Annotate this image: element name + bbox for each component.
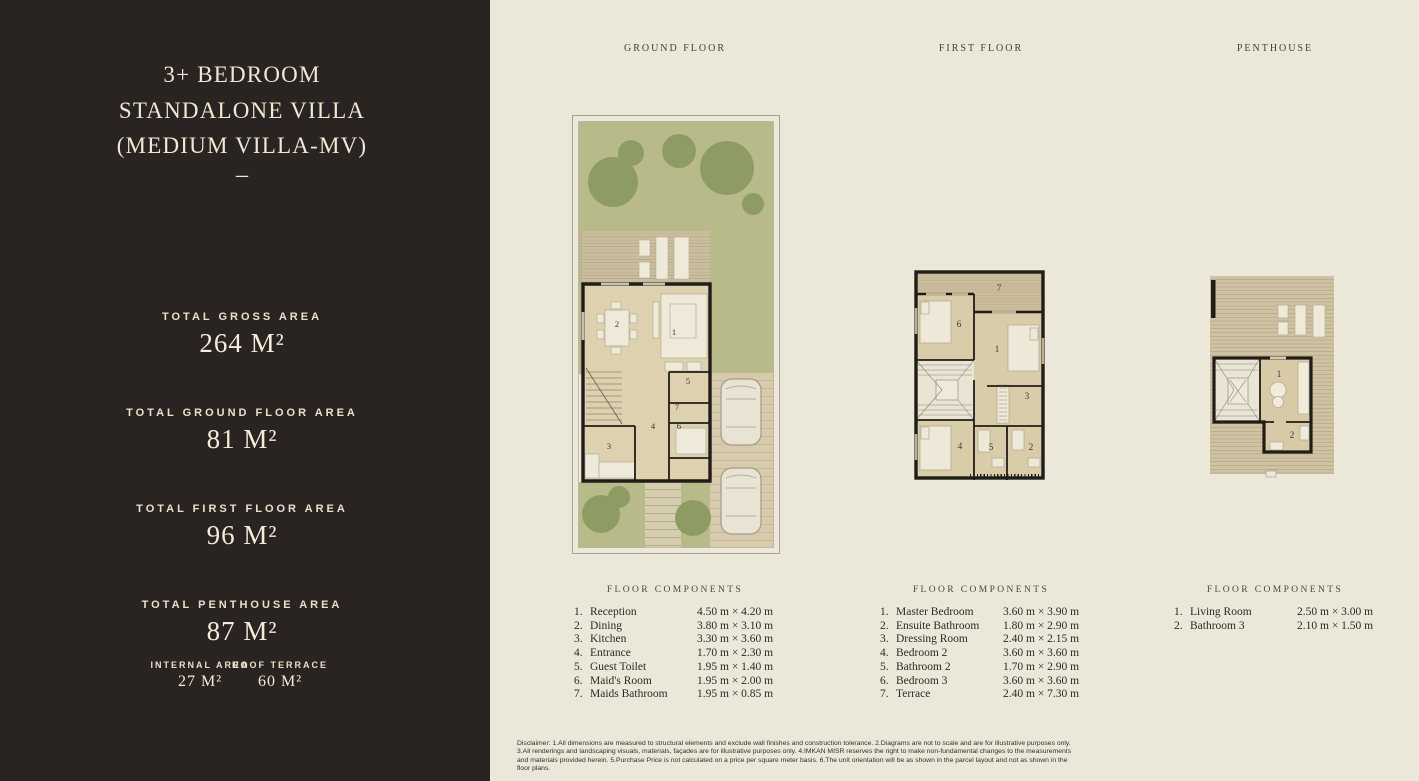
component-name: Living Room xyxy=(1190,606,1297,620)
ground-floor-components: FLOOR COMPONENTS 1.Reception4.50 m × 4.2… xyxy=(572,585,778,702)
stat-ground-floor-area-label: TOTAL GROUND FLOOR AREA xyxy=(0,407,484,419)
first-components-title: FLOOR COMPONENTS xyxy=(878,585,1084,595)
component-number: 3. xyxy=(878,633,896,647)
component-number: 1. xyxy=(572,606,590,620)
component-dims: 2.40 m × 7.30 m xyxy=(1003,688,1084,702)
component-name: Dressing Room xyxy=(896,633,1003,647)
component-dims: 2.50 m × 3.00 m xyxy=(1297,606,1378,620)
stat-ground-floor-area-value: 81 M² xyxy=(0,424,484,455)
ground-room-1-label: 1 xyxy=(672,327,676,337)
component-dims: 3.80 m × 3.10 m xyxy=(697,620,778,634)
stat-ground-floor-area: TOTAL GROUND FLOOR AREA 81 M² xyxy=(0,407,484,455)
stat-gross-area-value: 264 M² xyxy=(0,328,484,359)
stat-penthouse-area-label: TOTAL PENTHOUSE AREA xyxy=(0,599,484,611)
penthouse-plan-drawing: 1 2 xyxy=(1208,270,1336,478)
component-number: 7. xyxy=(878,688,896,702)
component-name: Maid's Room xyxy=(590,675,697,689)
page-title: 3+ BEDROOM STANDALONE VILLA (MEDIUM VILL… xyxy=(0,57,484,164)
ground-plan-deck-furniture xyxy=(639,237,689,279)
component-number: 4. xyxy=(572,647,590,661)
penthouse-components: FLOOR COMPONENTS 1.Living Room2.50 m × 3… xyxy=(1172,585,1378,633)
page-title-line1: 3+ BEDROOM xyxy=(0,57,484,93)
component-dims: 3.60 m × 3.60 m xyxy=(1003,647,1084,661)
component-name: Kitchen xyxy=(590,633,697,647)
component-name: Bathroom 3 xyxy=(1190,620,1297,634)
component-dims: 1.70 m × 2.90 m xyxy=(1003,661,1084,675)
component-name: Entrance xyxy=(590,647,697,661)
ground-room-7-label: 7 xyxy=(675,402,679,412)
penthouse-components-title: FLOOR COMPONENTS xyxy=(1172,585,1378,595)
component-name: Ensuite Bathroom xyxy=(896,620,1003,634)
component-number: 3. xyxy=(572,633,590,647)
first-room-2-label: 2 xyxy=(1029,442,1034,452)
ground-plan-stairs xyxy=(586,368,622,424)
ground-room-4-label: 4 xyxy=(651,421,656,431)
page-title-line2: STANDALONE VILLA xyxy=(0,93,484,129)
ground-room-5-label: 5 xyxy=(686,376,690,386)
component-number: 6. xyxy=(572,675,590,689)
component-number: 2. xyxy=(572,620,590,634)
stat-first-floor-area-value: 96 M² xyxy=(0,520,484,551)
component-row: 1.Master Bedroom3.60 m × 3.90 m xyxy=(878,606,1084,620)
stat-penthouse-area: TOTAL PENTHOUSE AREA 87 M² xyxy=(0,599,484,647)
penthouse-room-1-label: 1 xyxy=(1277,369,1282,379)
first-room-3-label: 3 xyxy=(1025,391,1030,401)
penthouse-plan-wall-stub xyxy=(1211,280,1216,318)
first-plan-drawing: 1 2 3 4 5 6 7 xyxy=(912,268,1047,483)
ground-room-3-label: 3 xyxy=(607,441,611,451)
ground-room-6-label: 6 xyxy=(677,421,681,431)
first-room-5-label: 5 xyxy=(989,442,994,452)
component-number: 7. xyxy=(572,688,590,702)
penthouse-heading: PENTHOUSE xyxy=(1175,43,1375,54)
ground-room-2-label: 2 xyxy=(615,319,619,329)
component-dims: 2.10 m × 1.50 m xyxy=(1297,620,1378,634)
first-room-7-label: 7 xyxy=(997,283,1002,293)
component-name: Dining xyxy=(590,620,697,634)
component-dims: 1.95 m × 1.40 m xyxy=(697,661,778,675)
component-dims: 1.80 m × 2.90 m xyxy=(1003,620,1084,634)
component-number: 2. xyxy=(878,620,896,634)
component-dims: 3.30 m × 3.60 m xyxy=(697,633,778,647)
component-row: 2.Ensuite Bathroom1.80 m × 2.90 m xyxy=(878,620,1084,634)
first-floor-plan: 1 2 3 4 5 6 7 xyxy=(912,268,1047,483)
first-room-6-label: 6 xyxy=(957,319,962,329)
component-row: 5.Bathroom 21.70 m × 2.90 m xyxy=(878,661,1084,675)
component-number: 5. xyxy=(572,661,590,675)
component-name: Bathroom 2 xyxy=(896,661,1003,675)
component-number: 5. xyxy=(878,661,896,675)
ground-plan-drawing: 1 2 3 4 5 6 7 xyxy=(573,116,779,553)
component-row: 3.Kitchen3.30 m × 3.60 m xyxy=(572,633,778,647)
title-dash: – xyxy=(0,162,484,189)
component-dims: 2.40 m × 2.15 m xyxy=(1003,633,1084,647)
component-number: 2. xyxy=(1172,620,1190,634)
first-floor-components: FLOOR COMPONENTS 1.Master Bedroom3.60 m … xyxy=(878,585,1084,702)
stat-roof-terrace-value: 60 M² xyxy=(215,673,345,691)
component-dims: 3.60 m × 3.60 m xyxy=(1003,675,1084,689)
penthouse-plan-gate-mark xyxy=(1266,471,1276,477)
component-name: Master Bedroom xyxy=(896,606,1003,620)
stat-first-floor-area: TOTAL FIRST FLOOR AREA 96 M² xyxy=(0,503,484,551)
component-row: 1.Reception4.50 m × 4.20 m xyxy=(572,606,778,620)
component-row: 6.Maid's Room1.95 m × 2.00 m xyxy=(572,675,778,689)
component-number: 1. xyxy=(878,606,896,620)
stat-first-floor-area-label: TOTAL FIRST FLOOR AREA xyxy=(0,503,484,515)
stat-roof-terrace: ROOF TERRACE 60 M² xyxy=(215,660,345,691)
component-dims: 1.95 m × 2.00 m xyxy=(697,675,778,689)
penthouse-plan: 1 2 xyxy=(1208,270,1336,478)
ground-components-title: FLOOR COMPONENTS xyxy=(572,585,778,595)
component-name: Terrace xyxy=(896,688,1003,702)
component-name: Bedroom 2 xyxy=(896,647,1003,661)
component-name: Guest Toilet xyxy=(590,661,697,675)
stat-gross-area: TOTAL GROSS AREA 264 M² xyxy=(0,311,484,359)
disclaimer-text: Disclaimer: 1.All dimensions are measure… xyxy=(517,740,1075,774)
first-room-4-label: 4 xyxy=(958,441,963,451)
component-name: Maids Bathroom xyxy=(590,688,697,702)
component-row: 2.Bathroom 32.10 m × 1.50 m xyxy=(1172,620,1378,634)
first-room-1-label: 1 xyxy=(995,344,1000,354)
component-row: 3.Dressing Room2.40 m × 2.15 m xyxy=(878,633,1084,647)
component-dims: 4.50 m × 4.20 m xyxy=(697,606,778,620)
stat-penthouse-area-value: 87 M² xyxy=(0,616,484,647)
component-row: 1.Living Room2.50 m × 3.00 m xyxy=(1172,606,1378,620)
ground-plan-room-furniture xyxy=(585,294,707,478)
penthouse-room-2-label: 2 xyxy=(1290,430,1295,440)
component-name: Bedroom 3 xyxy=(896,675,1003,689)
component-row: 4.Entrance1.70 m × 2.30 m xyxy=(572,647,778,661)
component-dims: 3.60 m × 3.90 m xyxy=(1003,606,1084,620)
component-number: 1. xyxy=(1172,606,1190,620)
component-row: 2.Dining3.80 m × 3.10 m xyxy=(572,620,778,634)
ground-floor-plan: 1 2 3 4 5 6 7 xyxy=(572,115,780,554)
stat-roof-terrace-label: ROOF TERRACE xyxy=(215,660,345,670)
component-dims: 1.70 m × 2.30 m xyxy=(697,647,778,661)
sidebar: 3+ BEDROOM STANDALONE VILLA (MEDIUM VILL… xyxy=(0,0,490,781)
component-row: 4.Bedroom 23.60 m × 3.60 m xyxy=(878,647,1084,661)
penthouse-plan-deck-furniture xyxy=(1278,305,1325,337)
component-row: 7.Terrace2.40 m × 7.30 m xyxy=(878,688,1084,702)
ground-floor-heading: GROUND FLOOR xyxy=(575,43,775,54)
stat-gross-area-label: TOTAL GROSS AREA xyxy=(0,311,484,323)
component-row: 6.Bedroom 33.60 m × 3.60 m xyxy=(878,675,1084,689)
component-number: 4. xyxy=(878,647,896,661)
component-number: 6. xyxy=(878,675,896,689)
component-dims: 1.95 m × 0.85 m xyxy=(697,688,778,702)
component-name: Reception xyxy=(590,606,697,620)
first-floor-heading: FIRST FLOOR xyxy=(881,43,1081,54)
component-row: 7.Maids Bathroom1.95 m × 0.85 m xyxy=(572,688,778,702)
page-title-line3: (MEDIUM VILLA-MV) xyxy=(0,128,484,164)
component-row: 5.Guest Toilet1.95 m × 1.40 m xyxy=(572,661,778,675)
car-icon xyxy=(721,379,761,534)
